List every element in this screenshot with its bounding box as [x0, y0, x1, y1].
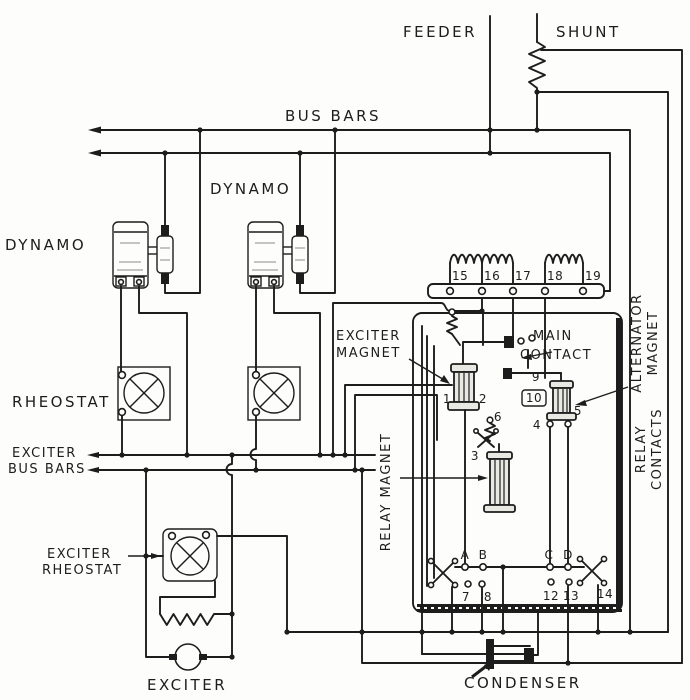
relay-contact-row: A B C D 7 8 12 13 14	[428, 548, 613, 604]
terminal-2-label: 2	[479, 392, 487, 406]
exciter-rheostat-label-2: RHEOSTAT	[42, 563, 122, 578]
terminal-7-label: 7	[462, 590, 470, 604]
relay-magnet-label: RELAY MAGNET	[379, 433, 394, 552]
terminal-13-label: 13	[563, 589, 579, 603]
exciter-rheostat	[143, 470, 289, 657]
relay-contacts-label-2: CONTACTS	[650, 408, 665, 490]
terminal-8-label: 8	[484, 590, 492, 604]
terminal-19-label: 19	[585, 269, 601, 283]
main-contact-label-2: CONTACT	[520, 348, 592, 363]
bus-bar-arrow-icon	[88, 150, 101, 157]
contact-c-label: C	[545, 548, 554, 562]
rheostat-right	[248, 367, 300, 473]
star-contact-left	[428, 558, 457, 587]
bus-bars-label: BUS BARS	[285, 107, 381, 125]
dynamo-right-label: DYNAMO	[210, 180, 291, 198]
dynamo-left-label: DYNAMO	[5, 236, 86, 254]
terminal-18-label: 18	[547, 269, 563, 283]
terminal-5-label: 5	[574, 404, 582, 418]
rheostat-left	[118, 367, 170, 458]
terminal-1-label: 1	[443, 392, 451, 406]
terminal-10-label: 10	[526, 391, 542, 405]
schematic-svg: 15 16 17 18 19	[0, 0, 690, 700]
contact-b-label: B	[479, 548, 488, 562]
terminal-9-label: 9	[532, 370, 540, 384]
exciter-magnet-label-2: MAGNET	[336, 346, 401, 361]
shunt-label: SHUNT	[556, 23, 621, 41]
terminal-17-label: 17	[515, 269, 531, 283]
alternator-magnet-label-2: MAGNET	[646, 311, 661, 376]
condenser-label: CONDENSER	[464, 674, 582, 692]
contact-a-label: A	[461, 548, 470, 562]
contact-d-label: D	[563, 548, 573, 562]
terminal-6-label: 6	[494, 410, 502, 424]
exciter-machine	[169, 455, 235, 670]
relay-contacts-label-1: RELAY	[634, 425, 649, 473]
exciter-label: EXCITER	[147, 676, 227, 694]
exciter-field-resistor	[160, 581, 235, 625]
star-contact-right	[577, 556, 606, 585]
exciter-bus-label-1: EXCITER	[12, 446, 77, 461]
exciter-bus-label-2: BUS BARS	[8, 462, 86, 477]
feeder-line	[487, 16, 492, 156]
terminal-12-label: 12	[543, 589, 559, 603]
exciter-rheostat-label-1: EXCITER	[47, 547, 112, 562]
bus-bar-arrow-icon	[88, 127, 101, 134]
terminal-3-label: 3	[471, 449, 479, 463]
exciter-magnet-label-1: EXCITER	[336, 329, 401, 344]
terminal-4-label: 4	[533, 418, 541, 432]
alternator-magnet-label-1: ALTERNATOR	[630, 293, 645, 392]
feeder-label: FEEDER	[403, 23, 477, 41]
schematic-page: 15 16 17 18 19	[0, 0, 690, 700]
terminal-14-label: 14	[597, 587, 613, 601]
alternator-magnet-coil: 9 10 4 5	[522, 370, 582, 563]
main-contact-label-1: MAIN	[533, 329, 573, 344]
relay-magnet-coil: 6 3	[471, 410, 515, 512]
terminal-16-label: 16	[484, 269, 500, 283]
condenser-symbol	[422, 610, 538, 669]
rheostat-label: RHEOSTAT	[12, 393, 111, 411]
exciter-bus-bars	[87, 452, 375, 473]
terminal-15-label: 15	[452, 269, 468, 283]
